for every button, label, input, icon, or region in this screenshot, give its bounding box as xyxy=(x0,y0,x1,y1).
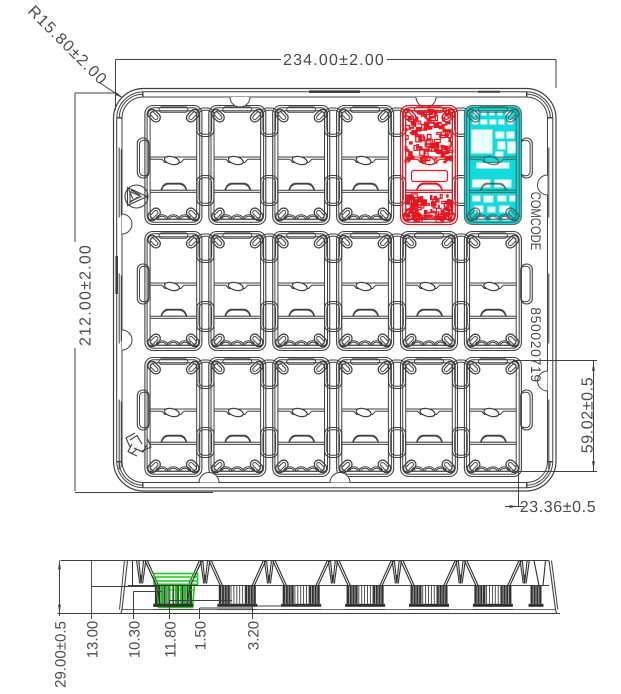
svg-text:212.00±2.00: 212.00±2.00 xyxy=(78,244,95,346)
svg-text:3.20: 3.20 xyxy=(246,621,263,650)
svg-text:59.02±0.5: 59.02±0.5 xyxy=(580,377,597,453)
svg-text:10.30: 10.30 xyxy=(127,621,144,659)
svg-text:1.50: 1.50 xyxy=(193,621,210,650)
svg-text:23.36±0.5: 23.36±0.5 xyxy=(520,499,596,516)
svg-text:850020719: 850020719 xyxy=(528,307,544,382)
svg-text:234.00±2.00: 234.00±2.00 xyxy=(283,52,385,69)
svg-text:29.00±0.5: 29.00±0.5 xyxy=(53,621,70,688)
svg-text:11.80: 11.80 xyxy=(163,621,180,657)
svg-text:13.00: 13.00 xyxy=(85,621,102,659)
svg-text:COMCODE: COMCODE xyxy=(528,192,544,251)
